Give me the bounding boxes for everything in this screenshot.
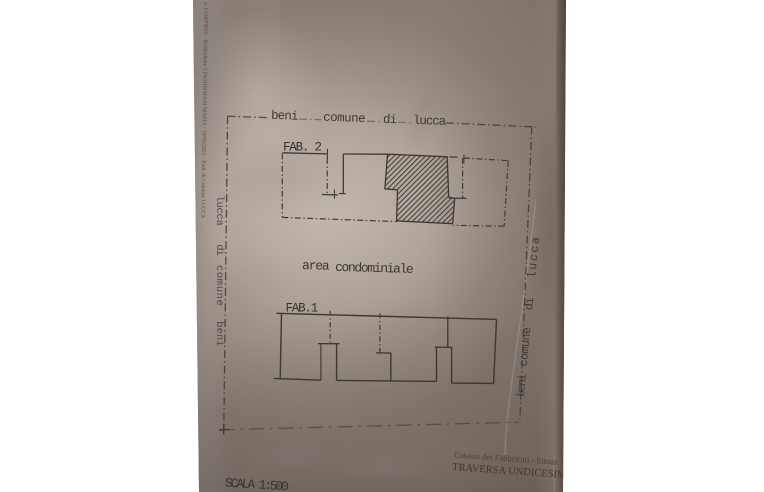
- svg-text:lucca: lucca: [213, 196, 225, 226]
- svg-text:comune: comune: [323, 111, 365, 126]
- svg-text:beni: beni: [213, 321, 225, 346]
- svg-text:area: area: [302, 258, 330, 274]
- svg-text:beni: beni: [271, 109, 298, 124]
- svg-text:lucca: lucca: [413, 114, 447, 129]
- svg-text:beni: beni: [515, 373, 530, 397]
- svg-text:SCALA 1:500: SCALA 1:500: [225, 476, 289, 492]
- svg-text:di: di: [213, 244, 225, 255]
- svg-text:di: di: [383, 113, 397, 127]
- svg-text:condominiale: condominiale: [335, 260, 413, 277]
- svg-text:di: di: [523, 297, 537, 311]
- svg-text:comune: comune: [213, 265, 225, 306]
